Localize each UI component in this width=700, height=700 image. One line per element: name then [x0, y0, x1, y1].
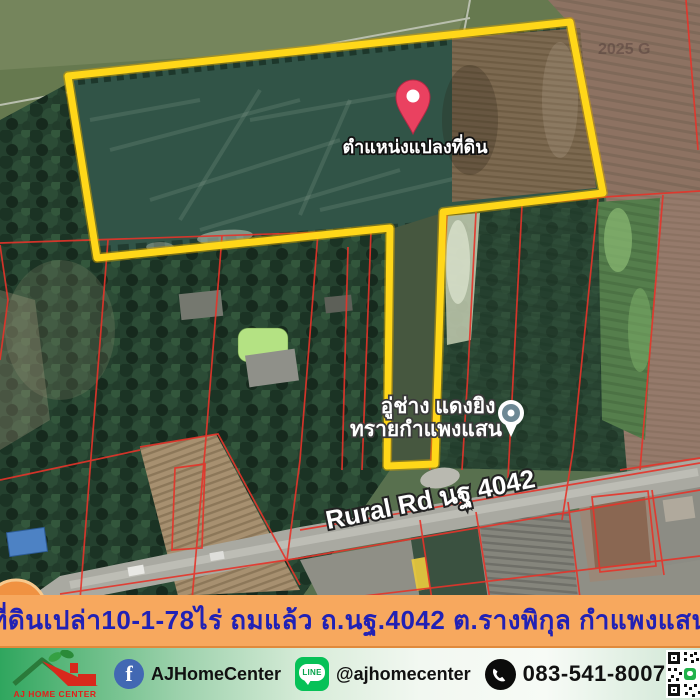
headline-text: ที่ดินเปล่า10-1-78ไร่ ถมแล้ว ถ.นฐ.4042 ต…	[0, 600, 700, 641]
map-watermark: 2025 G	[598, 41, 650, 58]
land-listing-ad: 2025 G Rural Rd นฐ 4042 อู่ช่าง แดงยิง ท…	[0, 0, 700, 700]
logo-block-red	[78, 674, 96, 686]
logo-chimney	[70, 663, 78, 673]
phone-icon[interactable]	[485, 659, 516, 690]
phone-number[interactable]: 083-541-8007	[523, 661, 666, 687]
satellite-map[interactable]: 2025 G Rural Rd นฐ 4042 อู่ช่าง แดงยิง ท…	[0, 0, 700, 595]
logo-text: AJ HOME CENTER	[13, 689, 96, 698]
line-icon[interactable]: LINE	[295, 657, 329, 691]
phone-contact[interactable]: 083-541-8007	[485, 659, 666, 690]
line-contact[interactable]: LINE @ajhomecenter	[295, 657, 485, 691]
line-icon-bubble: LINE	[299, 664, 325, 681]
facebook-handle[interactable]: AJHomeCenter	[151, 664, 281, 685]
qr-code	[666, 650, 700, 698]
pin-label: ตำแหน่งแปลงที่ดิน	[342, 134, 488, 157]
phone-handset-glyph	[491, 665, 510, 684]
poi-label-line1: อู่ช่าง แดงยิง	[381, 395, 496, 420]
line-icon-text: LINE	[302, 668, 321, 677]
facebook-icon-letter: f	[125, 661, 132, 687]
facebook-icon[interactable]: f	[114, 659, 144, 689]
contact-footer: AJ HOME CENTER f AJHomeCenter LINE @ajho…	[0, 648, 700, 700]
logo-leaf-2	[59, 650, 75, 660]
line-handle[interactable]: @ajhomecenter	[336, 664, 471, 685]
poi-label-line2: ทรายกำแพงแสน	[350, 418, 503, 441]
headline-banner: ที่ดินเปล่า10-1-78ไร่ ถมแล้ว ถ.นฐ.4042 ต…	[0, 595, 700, 648]
facebook-contact[interactable]: f AJHomeCenter	[114, 659, 295, 689]
company-logo: AJ HOME CENTER	[8, 650, 104, 698]
